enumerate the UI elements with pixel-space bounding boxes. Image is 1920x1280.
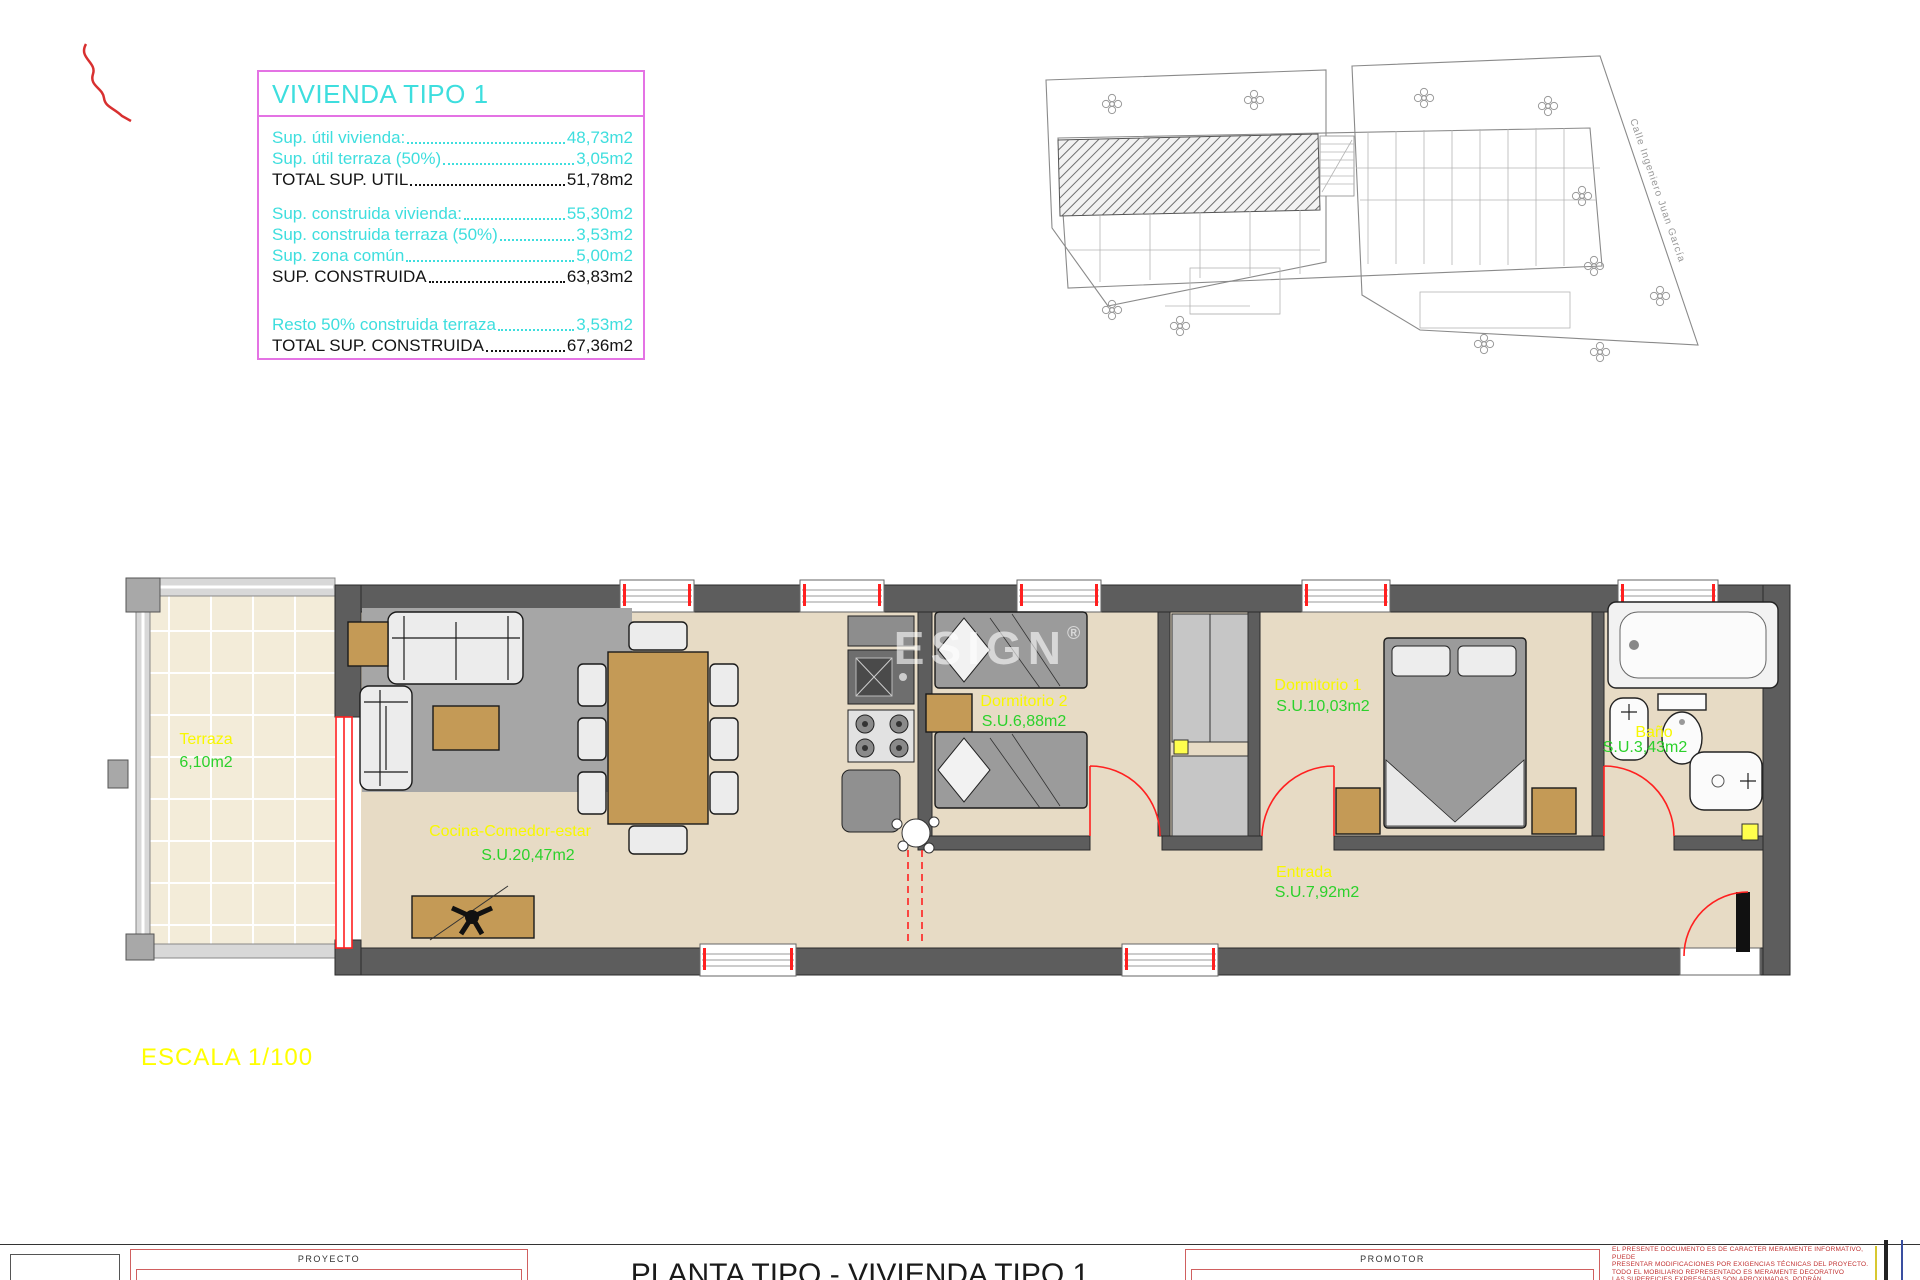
sheet-border-line	[1884, 1240, 1888, 1280]
dishwasher	[842, 770, 900, 832]
dining-chair	[629, 826, 687, 854]
dwelling-type-title: VIVIENDA TIPO 1	[259, 72, 643, 117]
disclaimer-text: EL PRESENTE DOCUMENTO ES DE CARÁCTER MER…	[1612, 1246, 1877, 1280]
surface-row: Sup. zona común 5,00m2	[272, 245, 633, 266]
room-area-bano: S.U.3,43m2	[1603, 739, 1688, 756]
surface-row-total: TOTAL SUP. CONSTRUIDA67,36m2	[272, 335, 633, 356]
window	[1302, 580, 1390, 612]
entry-door-leaf	[1736, 892, 1750, 952]
dining-table	[608, 652, 708, 824]
wall-corridor-3	[1334, 836, 1604, 850]
window	[620, 580, 694, 612]
title-block: PROYECTO PLANTA TIPO - VIVIENDA TIPO 1 P…	[0, 1240, 1920, 1280]
dining-chair	[710, 718, 738, 760]
room-label-entrada: Entrada	[1276, 864, 1332, 881]
surface-row: Sup. útil terraza (50%)3,05m2	[272, 148, 633, 169]
bed-double	[1384, 638, 1526, 828]
room-label-terraza: Terraza	[179, 731, 232, 748]
sheet-title: PLANTA TIPO - VIVIENDA TIPO 1	[560, 1258, 1160, 1280]
bed-single-2	[935, 732, 1087, 808]
proyecto-cell: PROYECTO	[130, 1249, 528, 1280]
sofa-top	[388, 612, 523, 684]
room-label-cocina: Cocina-Comedor-estar	[429, 823, 592, 840]
site-tree-symbols	[1102, 88, 1669, 361]
red-squiggle-mark	[84, 44, 131, 121]
promotor-field	[1191, 1269, 1594, 1280]
disclaimer-line: LAS SUPERFICIES EXPRESADAS SON APROXIMAD…	[1612, 1276, 1873, 1280]
plan-sheet: Calle Ingeniero Juan García	[0, 0, 1920, 1280]
scale-label: ESCALA 1/100	[141, 1044, 313, 1072]
promotor-label: PROMOTOR	[1186, 1250, 1599, 1264]
surface-row-total: TOTAL SUP. UTIL51,78m2	[272, 169, 633, 190]
room-area-dorm1: S.U.10,03m2	[1276, 698, 1369, 715]
surface-row: Sup. construida vivienda:55,30m2	[272, 203, 633, 224]
stove	[848, 710, 914, 762]
closet-bottom	[1172, 756, 1248, 836]
site-stairs	[1320, 136, 1354, 196]
window	[1017, 580, 1101, 612]
sofa-left	[360, 686, 412, 790]
useful-surface-group: Sup. útil vivienda:48,73m2 Sup. útil ter…	[272, 127, 633, 190]
window	[700, 944, 796, 976]
dining-chair	[710, 772, 738, 814]
pillow	[1458, 646, 1516, 676]
promotor-cell: PROMOTOR	[1185, 1249, 1600, 1280]
room-area-entrada: S.U.7,92m2	[1275, 884, 1360, 901]
surface-row-total: SUP. CONSTRUIDA63,83m2	[272, 266, 633, 287]
nightstand	[1532, 788, 1576, 834]
site-parcel-right	[1352, 56, 1698, 345]
surface-row: Sup. útil vivienda:48,73m2	[272, 127, 633, 148]
room-label-dorm2: Dormitorio 2	[980, 693, 1067, 710]
highlighted-unit-hatch	[1058, 134, 1320, 216]
dining-chair	[578, 664, 606, 706]
dining-chair	[578, 718, 606, 760]
room-area-terraza: 6,10m2	[179, 754, 232, 771]
terrace-pier-top	[126, 578, 160, 612]
dining-chair	[578, 772, 606, 814]
window	[800, 580, 884, 612]
room-label-dorm1: Dormitorio 1	[1274, 677, 1361, 694]
proyecto-field	[136, 1269, 522, 1280]
sheet-border-line-blue	[1901, 1240, 1903, 1280]
pillow	[1392, 646, 1450, 676]
terrace-floor	[150, 596, 335, 944]
bathtub	[1608, 602, 1778, 688]
terrace-outside-stub	[108, 760, 128, 788]
wall-corridor-1	[918, 836, 1090, 850]
light-switch	[1174, 740, 1188, 754]
terrace-pier-bottom	[126, 934, 154, 960]
title-block-empty-cell	[10, 1254, 120, 1280]
surface-summary-box: VIVIENDA TIPO 1 Sup. útil vivienda:48,73…	[257, 70, 645, 360]
watermark: ESIGN®	[894, 622, 1086, 674]
nightstand	[1336, 788, 1380, 834]
total-built-group: Resto 50% construida terraza3,53m2 TOTAL…	[272, 314, 633, 356]
room-area-cocina: S.U.20,47m2	[481, 847, 574, 864]
floor-plan: ESIGN® Terraza 6,10m2 Cocina-Comedor-est…	[108, 578, 1790, 976]
wall-closet-dorm1	[1248, 612, 1260, 836]
side-table	[348, 622, 388, 666]
hall-closets	[1172, 614, 1248, 836]
coffee-table	[433, 706, 499, 750]
surface-row: Resto 50% construida terraza3,53m2	[272, 314, 633, 335]
wall-dorm2-closet	[1158, 612, 1170, 836]
wall-corridor-2	[1162, 836, 1262, 850]
disclaimer-line: PRESENTAR MODIFICACIONES POR EXIGENCIAS …	[1612, 1261, 1873, 1269]
wall-bottom	[335, 948, 1790, 975]
street-label: Calle Ingeniero Juan García	[1627, 117, 1687, 264]
surface-row: Sup. construida terraza (50%)3,53m2	[272, 224, 633, 245]
room-area-dorm2: S.U.6,88m2	[982, 713, 1067, 730]
built-surface-group: Sup. construida vivienda:55,30m2 Sup. co…	[272, 203, 633, 287]
proyecto-label: PROYECTO	[131, 1250, 527, 1264]
disclaimer-line: EL PRESENTE DOCUMENTO ES DE CARÁCTER MER…	[1612, 1246, 1873, 1261]
site-plan: Calle Ingeniero Juan García	[1046, 56, 1698, 362]
light-switch	[1742, 824, 1758, 840]
title-block-rule	[0, 1244, 1920, 1245]
terrace-door	[336, 717, 352, 948]
wardrobe-dorm2	[926, 694, 972, 732]
bathroom-sink	[1690, 752, 1762, 810]
dining-chair	[629, 622, 687, 650]
terrace-wall-bottom	[136, 944, 336, 958]
window	[1122, 944, 1218, 976]
wall-dorm1-bath	[1592, 612, 1604, 836]
dining-chair	[710, 664, 738, 706]
